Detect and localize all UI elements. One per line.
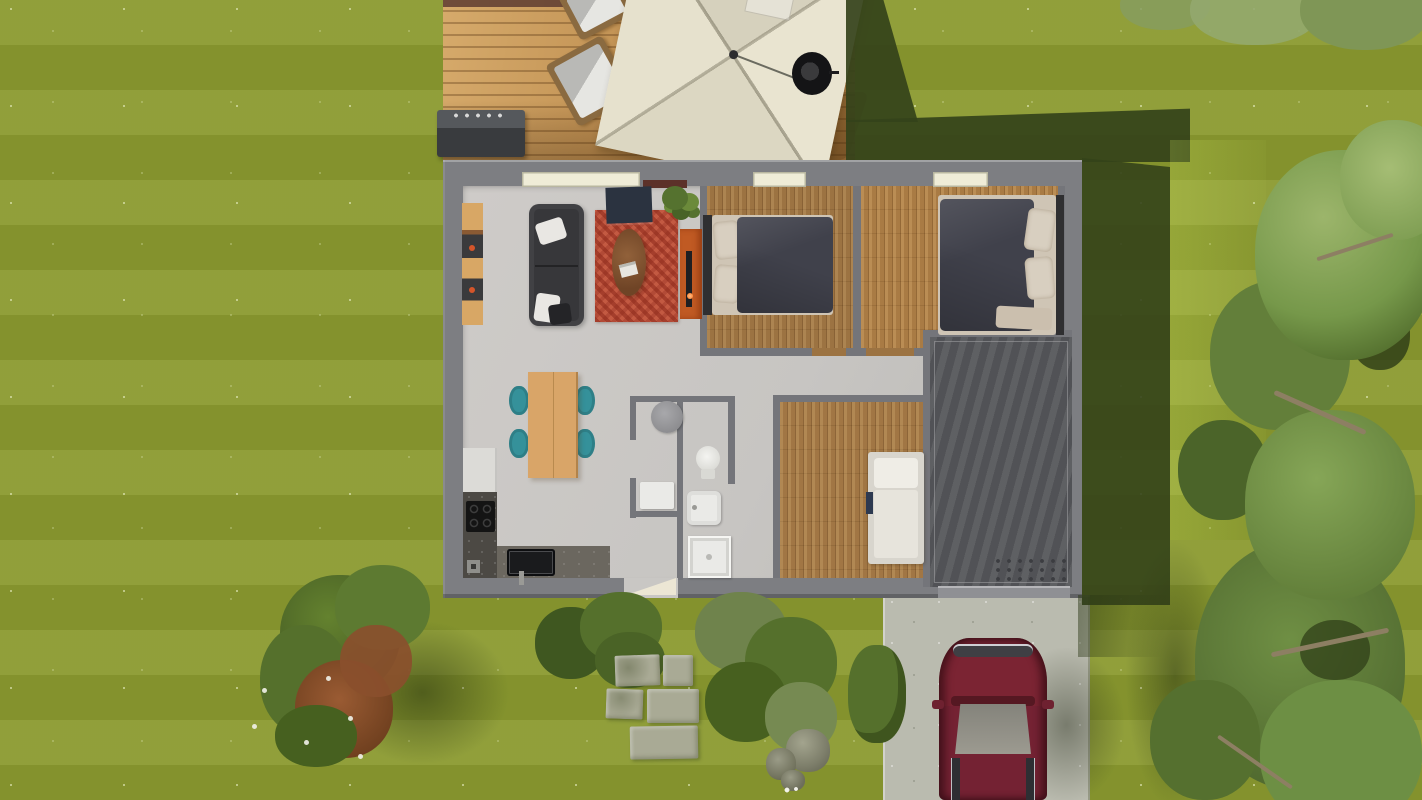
car-side-window (951, 758, 960, 800)
canopy-gap (1300, 620, 1370, 680)
bedroom1-door-opening (812, 348, 846, 356)
stepping-stone[interactable] (605, 688, 643, 719)
interior-wall (728, 396, 735, 484)
duvet (737, 217, 833, 313)
car-mirror (1042, 700, 1054, 709)
white-flowers (783, 786, 803, 794)
coffee-table[interactable] (612, 229, 646, 296)
bed-single[interactable] (868, 452, 924, 564)
bed-throw (995, 306, 1052, 331)
window (522, 172, 640, 187)
dining-chair[interactable] (509, 386, 529, 415)
kitchen-sink[interactable] (507, 549, 555, 576)
dining-chair[interactable] (575, 386, 595, 415)
large-tree[interactable] (1150, 120, 1422, 800)
interior-wall (923, 337, 930, 587)
headboard (1056, 195, 1064, 335)
garage-door[interactable] (938, 586, 1070, 598)
interior-wall (630, 511, 683, 517)
shelving-unit[interactable] (462, 203, 483, 325)
interior-wall (773, 402, 780, 578)
car-front-grille (953, 644, 1033, 657)
stepping-stone[interactable] (663, 655, 693, 686)
bed-pillow (874, 458, 918, 488)
sofa[interactable] (529, 204, 584, 326)
bed-pillow (1024, 256, 1056, 300)
refrigerator[interactable] (463, 448, 497, 492)
dining-chair[interactable] (575, 429, 595, 458)
bathroom-cabinet[interactable] (640, 482, 674, 509)
bed-cover (874, 490, 918, 558)
potted-plant[interactable] (662, 186, 688, 210)
shower-tray[interactable] (688, 536, 731, 578)
rust-foliage (340, 625, 412, 697)
tree-canopy (1150, 680, 1260, 800)
stepping-stone[interactable] (630, 725, 699, 759)
deck-cast-shadow (846, 0, 918, 122)
car-windshield (955, 704, 1031, 754)
toilet[interactable] (694, 446, 722, 480)
bed-double-1[interactable] (703, 215, 833, 315)
overhanging-branch (1300, 0, 1422, 50)
washbasin[interactable] (687, 491, 721, 525)
round-washbasin[interactable] (651, 401, 683, 433)
parasol-pole (728, 49, 739, 60)
window (753, 172, 806, 187)
sink-faucet (519, 571, 524, 585)
sofa-pillow (534, 216, 567, 246)
stepping-stone[interactable] (647, 689, 699, 723)
white-flowers (262, 688, 267, 693)
kitchen-small-appliance[interactable] (467, 560, 480, 573)
tv-sideboard[interactable] (680, 229, 702, 319)
headboard (703, 215, 712, 315)
garage-tire-marks (993, 556, 1067, 584)
bedroom2-door-opening (866, 348, 914, 356)
car-mirror (932, 700, 944, 709)
bed-double-2[interactable] (938, 195, 1064, 335)
interior-wall (773, 395, 930, 402)
stepping-stone[interactable] (614, 654, 660, 687)
flowering-bush (275, 705, 357, 767)
car[interactable] (939, 638, 1049, 800)
bed-pillow (1023, 207, 1057, 252)
tree-canopy (1245, 410, 1415, 600)
bbq-grill[interactable] (437, 110, 525, 157)
car-side-window (1026, 758, 1035, 800)
window (933, 172, 988, 187)
interior-wall (630, 396, 636, 440)
interior-wall (853, 186, 861, 348)
cooktop[interactable] (466, 501, 495, 532)
fire-pit[interactable] (792, 52, 832, 95)
bedside-item[interactable] (866, 492, 873, 514)
sofa-pillow (548, 303, 573, 326)
parasol-vent (744, 0, 798, 21)
aerial-home-render (0, 0, 1422, 800)
dining-chair[interactable] (509, 429, 529, 458)
dining-table[interactable] (528, 372, 578, 478)
garden-shrub (848, 645, 906, 743)
garage-floor (930, 337, 1072, 587)
wall-screen[interactable] (605, 186, 652, 224)
